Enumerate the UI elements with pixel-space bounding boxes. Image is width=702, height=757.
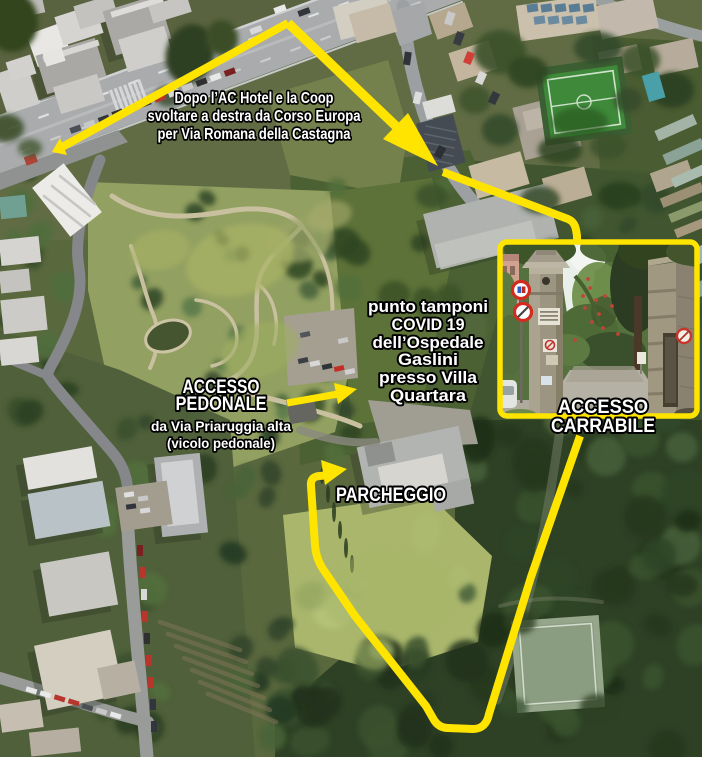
svg-text:(vicolo pedonale): (vicolo pedonale) — [167, 436, 275, 451]
svg-text:Dopo l’AC Hotel e la Coop: Dopo l’AC Hotel e la Coop — [175, 90, 334, 107]
svg-text:PEDONALE: PEDONALE — [176, 394, 267, 415]
svg-text:PARCHEGGIO: PARCHEGGIO — [336, 485, 446, 506]
svg-text:Gaslini: Gaslini — [398, 350, 458, 369]
svg-text:per Via Romana della Castagna: per Via Romana della Castagna — [158, 126, 351, 143]
svg-text:presso Villa: presso Villa — [379, 368, 478, 387]
svg-text:ACCESSO: ACCESSO — [558, 397, 648, 418]
svg-text:CARRABILE: CARRABILE — [551, 416, 655, 437]
svg-text:svoltare a destra da Corso Eur: svoltare a destra da Corso Europa — [148, 108, 361, 125]
svg-text:Quartara: Quartara — [390, 386, 467, 405]
svg-text:punto tamponi: punto tamponi — [368, 297, 488, 316]
svg-text:da Via Priaruggia alta: da Via Priaruggia alta — [151, 419, 291, 434]
svg-text:COVID 19: COVID 19 — [392, 315, 465, 334]
